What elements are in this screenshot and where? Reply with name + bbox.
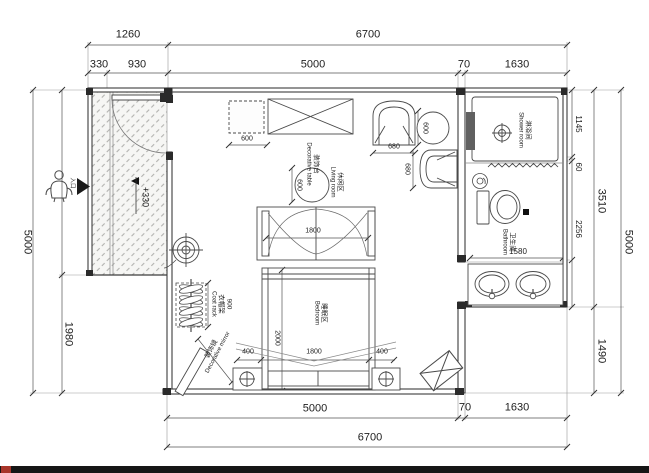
paper-holder xyxy=(473,174,488,189)
shower-niche xyxy=(466,112,475,150)
armchair-top xyxy=(373,101,415,145)
floorplan-drawing xyxy=(0,0,649,473)
coat-rack xyxy=(176,279,206,332)
side-table xyxy=(417,112,449,144)
nightstand-right xyxy=(372,368,400,390)
floor-drain xyxy=(523,209,529,215)
entry-porch xyxy=(92,92,167,275)
red-chip xyxy=(1,466,11,473)
wardrobe-cabinet xyxy=(268,99,353,134)
bed-canopy xyxy=(257,207,375,260)
storage-box xyxy=(229,101,264,133)
bottom-bar xyxy=(0,466,649,473)
armchair-side xyxy=(420,150,457,188)
nightstand-left xyxy=(233,368,262,390)
shower-room xyxy=(465,97,563,167)
vanity xyxy=(468,264,563,305)
shower-curtain xyxy=(488,164,558,168)
floorplan-page: 1260 6700 330 930 5000 70 1630 5000 70 1… xyxy=(0,0,649,473)
toilet xyxy=(477,191,520,225)
decorative-table xyxy=(295,168,329,202)
person-figure xyxy=(46,171,72,202)
luggage-rack xyxy=(420,351,463,391)
